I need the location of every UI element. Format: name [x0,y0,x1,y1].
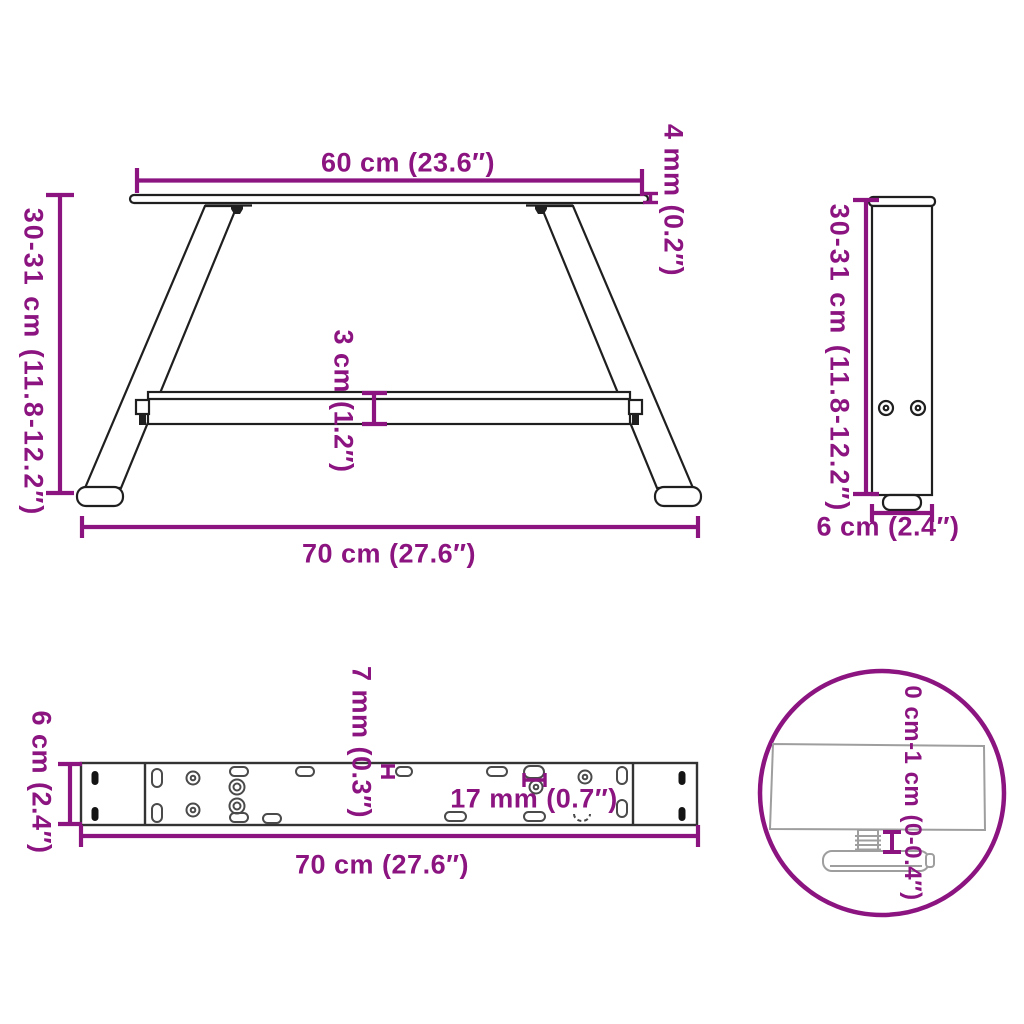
dim-front-plate-thickness: 4 mm (0.2″) [658,124,689,276]
dim-top-hole-diameter: 7 mm (0.3″) [346,666,377,818]
front-left-foot [77,487,123,506]
side-foot [883,495,921,510]
front-right-foot [655,487,701,506]
detail-leg-end [770,744,985,830]
front-view [77,195,701,506]
dim-front-height: 30-31 cm (11.8-12.2″) [18,208,49,517]
front-left-leg [85,206,237,488]
dim-top-length: 70 cm (27.6″) [295,850,469,881]
dim-front-bottom-width: 70 cm (27.6″) [302,539,476,570]
dim-side-depth: 6 cm (2.4″) [817,512,960,543]
front-top-plate [130,195,648,203]
dim-front-top-width: 60 cm (23.6″) [321,148,495,179]
side-view [869,197,935,510]
dim-front-crossbar-thickness: 3 cm (1.2″) [328,330,359,473]
detail-view [760,671,1004,915]
side-leg-body [872,206,932,495]
front-crossbar [148,392,630,424]
dim-top-slot-length: 17 mm (0.7″) [450,784,618,815]
dimension-diagram: 60 cm (23.6″) 30-31 cm (11.8-12.2″) 4 mm… [0,0,1024,1024]
dim-top-depth: 6 cm (2.4″) [26,711,57,854]
dim-side-height: 30-31 cm (11.8-12.2″) [824,204,855,513]
dim-detail-adjustable-height: 0 cm-1 cm (0-0.4″) [898,685,926,900]
